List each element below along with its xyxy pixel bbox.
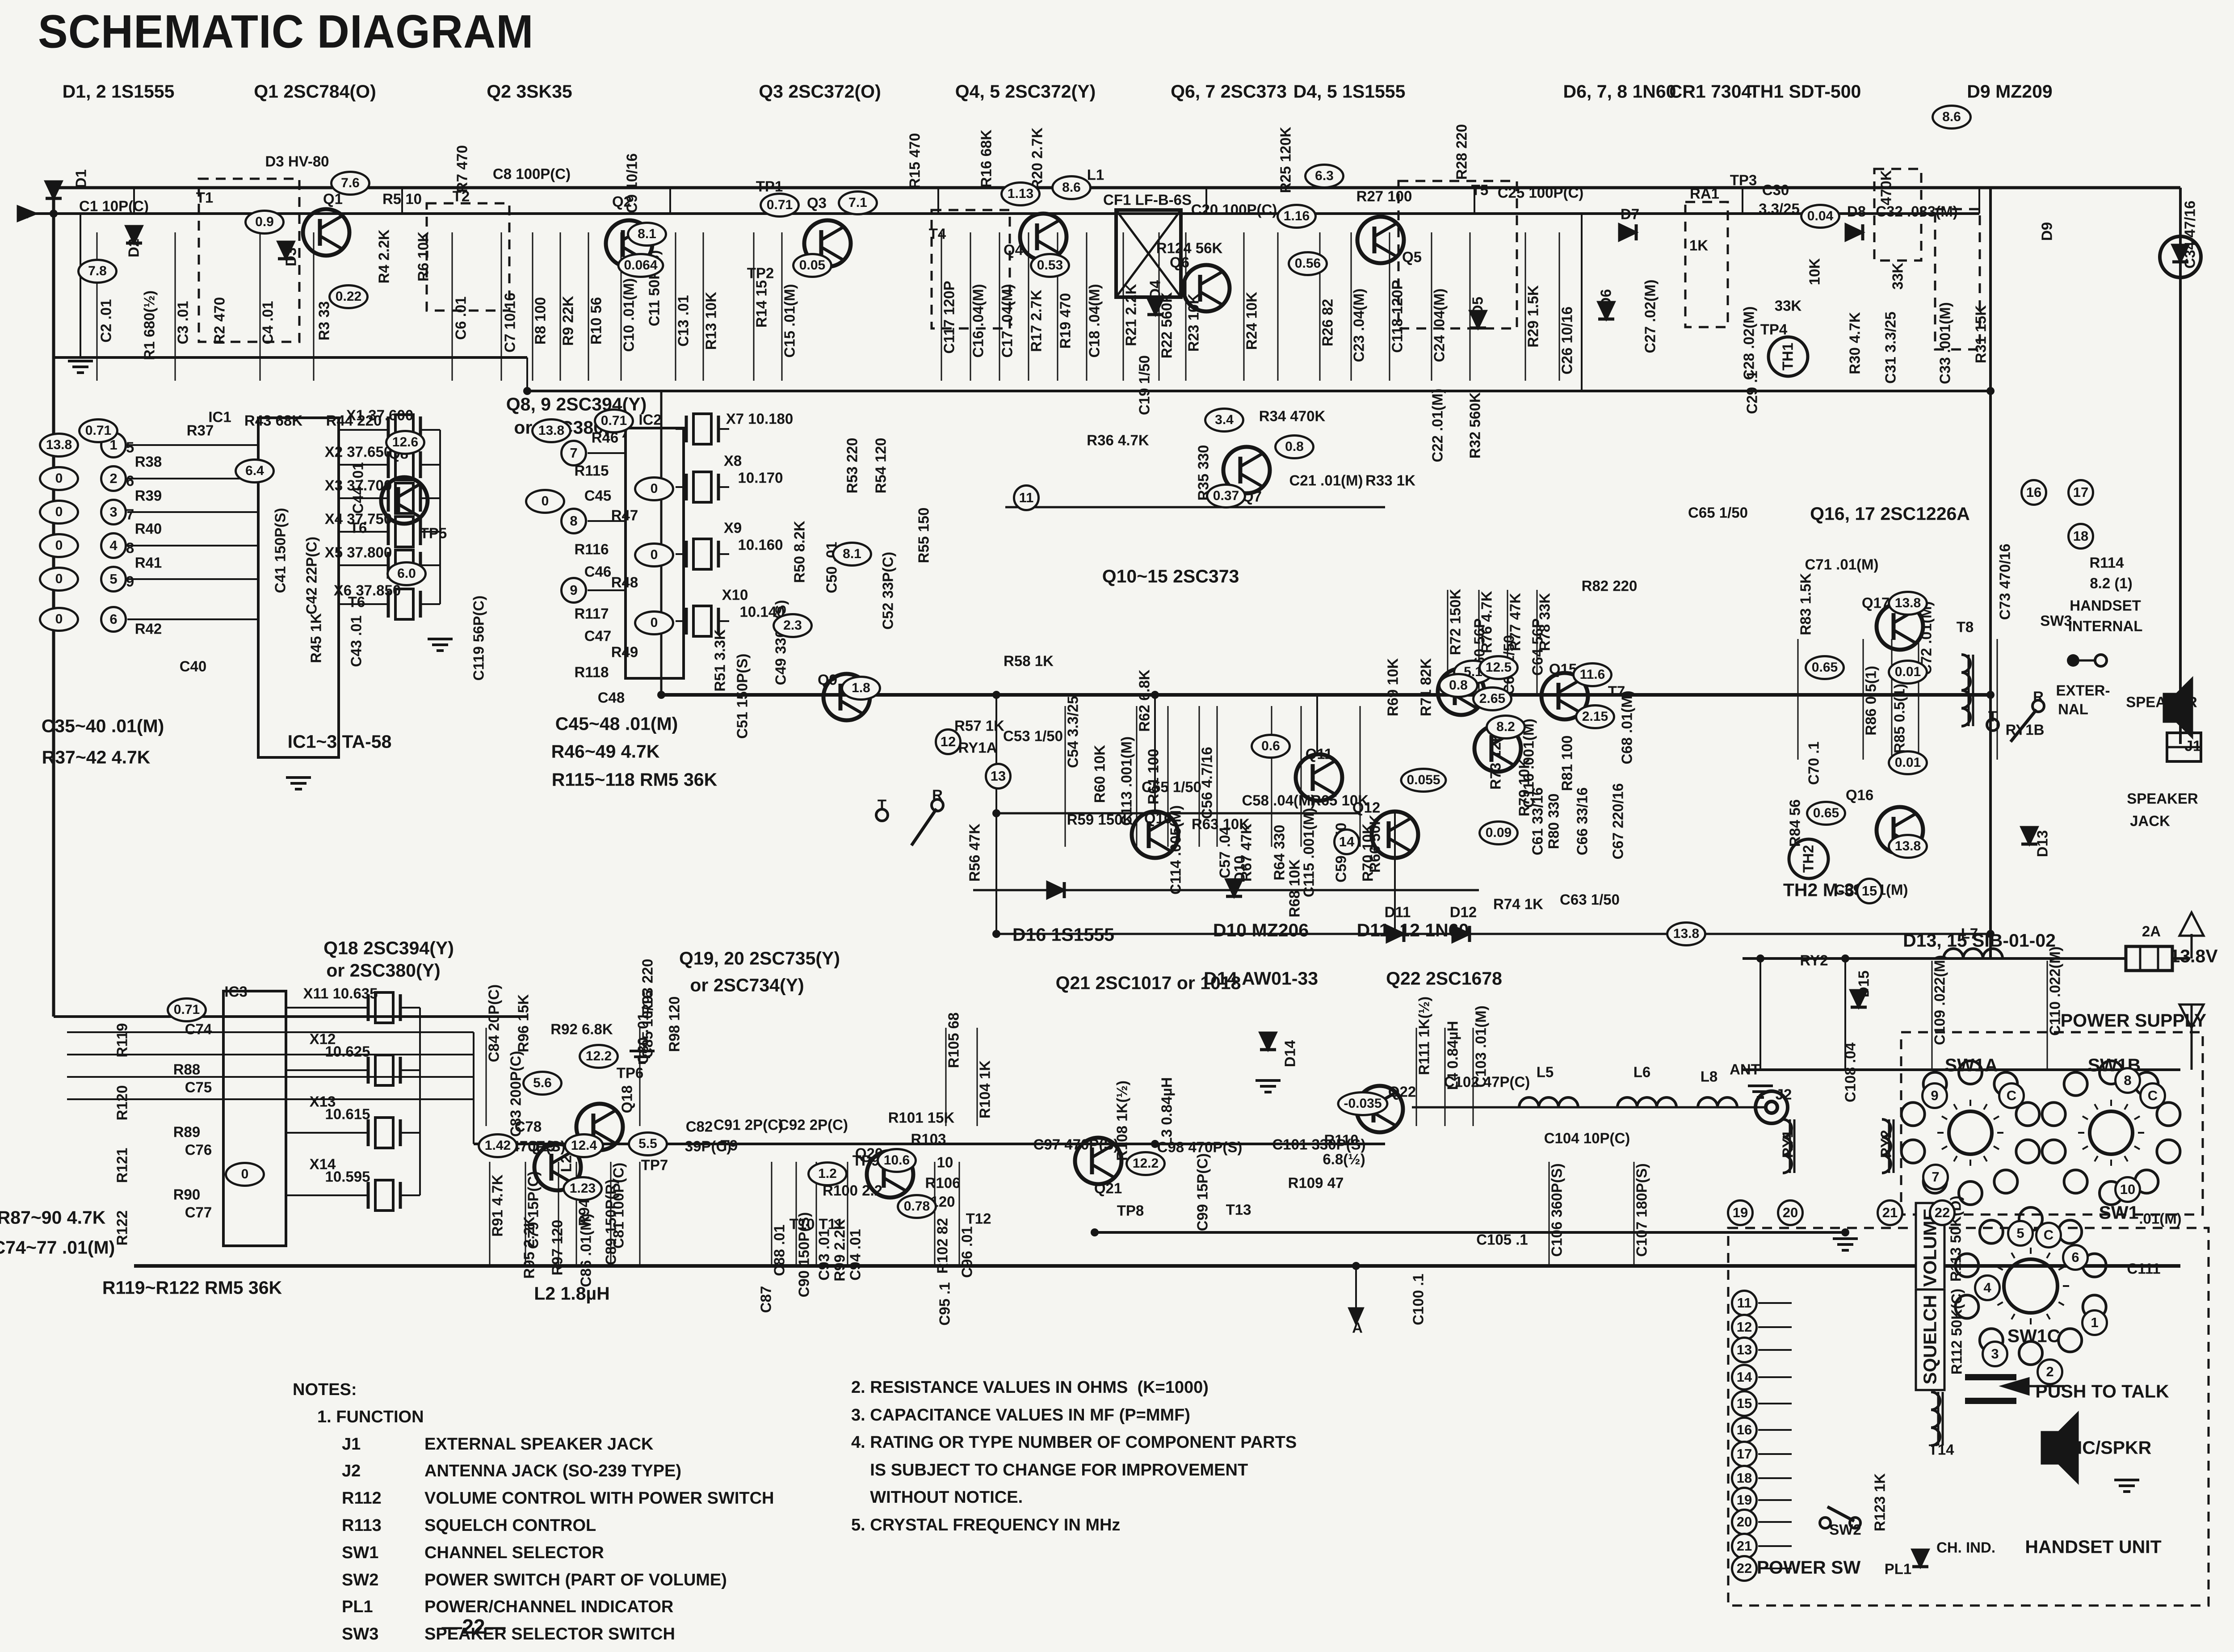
voltage-badge: 1.13 — [1000, 181, 1041, 206]
component-label: R46~49 4.7K — [551, 742, 660, 761]
component-label: PL1 — [1885, 1562, 1912, 1577]
terminal-badge: C — [2139, 1082, 2166, 1109]
voltage-badge: 0.71 — [760, 193, 800, 218]
component-label: MIC/SPKR — [2062, 1438, 2151, 1457]
component-label: Q21 — [1094, 1181, 1122, 1197]
component-label: C20 100P(C) — [1191, 202, 1277, 218]
component-label: C13 .01 — [676, 295, 692, 347]
voltage-badge: 1.16 — [1277, 204, 1317, 229]
component-label: R96 15K — [516, 994, 532, 1052]
voltage-badge: 13.8 — [39, 433, 79, 458]
component-label: C31 3.3/25 — [1883, 311, 1899, 383]
component-label: C110 .022(M) — [2048, 946, 2063, 1036]
component-label: Q4 — [1004, 243, 1023, 258]
component-label: C4 .01 — [260, 301, 276, 344]
component-label: 33K — [1890, 263, 1906, 290]
component-label: 10K — [1807, 258, 1823, 286]
terminal-badge: 4 — [100, 532, 127, 559]
component-label: C61 33/16 — [1530, 787, 1546, 855]
voltage-badge: 0.78 — [897, 1194, 937, 1219]
component-label: R2 470 — [212, 297, 228, 345]
component-label: TP3 — [1730, 173, 1757, 189]
component-label: X8 — [724, 454, 742, 469]
terminal-badge: 16 — [2020, 479, 2047, 506]
component-label: C18 .04(M) — [1087, 284, 1103, 357]
voltage-badge: 0.71 — [78, 418, 118, 443]
function-code: RY1,2 — [342, 1648, 424, 1652]
component-label: RY2 — [1800, 953, 1828, 969]
function-code: SW3 — [342, 1621, 424, 1648]
component-label: X10 — [722, 588, 748, 603]
component-label: C99 15P(C) — [1195, 1153, 1211, 1231]
component-label: TP2 — [747, 266, 774, 282]
voltage-badge: 8.6 — [1932, 105, 1972, 130]
component-label: C85 10/16 — [640, 990, 656, 1058]
component-label: Q12 — [1352, 800, 1380, 816]
terminal-badge: 22 — [1731, 1555, 1758, 1582]
component-label: TH1 — [1780, 343, 1796, 370]
component-label: R55 150 — [916, 508, 932, 563]
component-label: C41 150P(S) — [273, 508, 289, 593]
component-label: POWER SUPPLY — [2061, 1011, 2207, 1030]
terminal-badge: 5 — [100, 566, 127, 593]
component-label: R54 120 — [873, 438, 889, 494]
voltage-badge: 12.5 — [1478, 655, 1519, 680]
component-label: R82 220 — [1582, 579, 1638, 594]
terminal-badge: 15 — [1731, 1390, 1758, 1417]
component-label: R9 22K — [561, 296, 576, 346]
component-label: R103 — [911, 1132, 946, 1148]
component-label: R70 10K — [1361, 824, 1376, 882]
component-label: R84 56 — [1788, 799, 1803, 847]
component-label: SPEAKER — [2126, 695, 2197, 710]
component-label: R — [2033, 689, 2044, 705]
function-desc: POWER SWITCH (PART OF VOLUME) — [424, 1567, 727, 1594]
component-label: HANDSET UNIT — [2025, 1537, 2161, 1556]
component-label: RY1B — [2006, 723, 2045, 738]
component-label: RY2 — [1879, 1130, 1894, 1158]
component-label: Q9 — [818, 673, 837, 688]
terminal-badge: 15 — [1856, 878, 1883, 904]
component-label: L8 — [1701, 1069, 1718, 1085]
component-label: C63 1/50 — [1560, 892, 1620, 908]
component-label: JACK — [2130, 814, 2170, 829]
component-label: R97 120 — [550, 1220, 566, 1276]
component-label: IC2 — [638, 412, 661, 428]
voltage-badge: 1.2 — [807, 1161, 848, 1186]
component-label: R110 — [1324, 1133, 1358, 1148]
component-label: Q2 — [612, 194, 632, 210]
component-label: R50 8.2K — [792, 521, 808, 583]
component-label: C108 .04 — [1843, 1042, 1859, 1102]
component-label: POWER SW — [1757, 1558, 1860, 1577]
terminal-badge: 21 — [1877, 1199, 1903, 1226]
component-label: R121 — [115, 1148, 130, 1183]
component-label: C73 470/16 — [1998, 544, 2013, 620]
component-label: X5 37.800 — [325, 545, 392, 561]
component-label: IC1~3 TA-58 — [288, 732, 392, 751]
component-label: R44 220 — [326, 413, 382, 429]
component-label: 8.2 (1) — [2090, 576, 2132, 592]
component-label: R38 — [135, 454, 162, 470]
component-label: J1 — [2185, 739, 2201, 754]
terminal-badge: 14 — [1333, 828, 1360, 855]
voltage-badge: 0.8 — [1438, 673, 1478, 698]
voltage-badge: 0 — [634, 542, 674, 567]
terminal-badge: 2 — [2037, 1358, 2063, 1385]
component-label: Q10~15 2SC373 — [1102, 567, 1239, 586]
component-label: R26 82 — [1320, 299, 1336, 346]
component-label: C56 4.7/16 — [1200, 747, 1215, 819]
component-label: TH2 — [1801, 845, 1817, 873]
voltage-badge: 12.2 — [579, 1044, 619, 1069]
component-label: C94 .01 — [848, 1229, 864, 1281]
top-component-label: D1, 2 1S1555 — [63, 82, 175, 101]
notes-function-item: R113SQUELCH CONTROL — [342, 1512, 774, 1539]
component-label: D1 — [74, 169, 89, 188]
component-label: TP4 — [1760, 322, 1788, 338]
notes-function-list: J1EXTERNAL SPEAKER JACKJ2ANTENNA JACK (S… — [293, 1431, 774, 1652]
top-component-label: Q1 2SC784(O) — [254, 82, 376, 101]
component-label: R57 1K — [954, 719, 1004, 734]
component-label: R123 1K — [1873, 1473, 1888, 1531]
voltage-badge: 5.5 — [628, 1131, 668, 1156]
component-label: R115 — [574, 463, 609, 479]
terminal-badge: 4 — [1974, 1274, 2001, 1301]
notes-function-item: SW3SPEAKER SELECTOR SWITCH — [342, 1621, 774, 1648]
component-label: ANT — [1730, 1062, 1760, 1078]
component-label: SW2 — [1829, 1522, 1861, 1538]
terminal-badge: 11 — [1013, 484, 1040, 511]
notes-function-item: PL1POWER/CHANNEL INDICATOR — [342, 1593, 774, 1621]
component-label: C19 1/50 — [1137, 355, 1153, 415]
component-label: D3 — [284, 248, 299, 266]
component-label: C67 220/16 — [1611, 783, 1626, 860]
component-label: R13 10K — [704, 292, 719, 350]
terminal-badge: 8 — [2114, 1067, 2141, 1094]
component-label: R117 — [574, 606, 609, 622]
voltage-badge: 8.1 — [627, 222, 667, 247]
terminal-badge: 7 — [560, 440, 587, 467]
component-label: R36 4.7K — [1087, 433, 1149, 449]
component-label: 10.625 — [325, 1044, 370, 1060]
component-label: C82 — [686, 1119, 713, 1135]
component-label: C40 — [180, 659, 207, 675]
terminal-badge: 3 — [100, 499, 127, 525]
component-label: Q18 — [620, 1085, 635, 1113]
component-label: D2 — [126, 239, 142, 257]
component-label: D11, 12 1N60 — [1357, 921, 1469, 940]
component-label: C48 — [598, 690, 625, 706]
component-label: R81 100 — [1560, 736, 1575, 791]
voltage-badge: 0 — [39, 500, 79, 525]
component-label: R31 15K — [1974, 305, 1989, 363]
component-label: T14 — [1929, 1442, 1954, 1458]
component-label: C45 — [584, 488, 612, 504]
voltage-badge: 0.71 — [167, 997, 207, 1022]
voltage-badge: 0.8 — [1274, 434, 1314, 459]
component-label: R43 68K — [244, 413, 302, 429]
component-label: T6 — [348, 595, 365, 610]
page-title: SCHEMATIC DIAGRAM — [38, 5, 534, 59]
component-label: Q22 — [1388, 1085, 1416, 1100]
component-label: R3 33 — [317, 301, 332, 340]
component-label: R40 — [135, 521, 162, 537]
voltage-badge: 0.055 — [1400, 768, 1447, 793]
voltage-badge: 0 — [525, 489, 565, 514]
component-label: R8 100 — [533, 297, 549, 345]
component-label: R25 120K — [1278, 127, 1294, 193]
component-label: C76 — [185, 1143, 212, 1158]
voltage-badge: 6.4 — [235, 458, 275, 483]
component-label: D3 HV-80 — [265, 154, 329, 170]
voltage-badge: 0.65 — [1805, 655, 1845, 680]
component-label: R61 100 — [1146, 749, 1162, 805]
component-label: T5 — [1471, 183, 1489, 198]
top-component-label: Q6, 7 2SC373 — [1171, 82, 1287, 101]
component-label: R74 1K — [1493, 897, 1543, 912]
component-label: C42 22P(C) — [304, 537, 320, 614]
component-label: X7 10.180 — [726, 412, 793, 427]
terminal-badge: 5 — [2007, 1220, 2034, 1247]
component-label: R19 470 — [1058, 293, 1074, 349]
component-label: R37~42 4.7K — [42, 748, 151, 767]
component-label: R98 120 — [667, 996, 683, 1052]
component-label: L2 1.8µH — [534, 1284, 609, 1303]
component-label: or 2SC380(Y) — [326, 961, 440, 980]
component-label: R32 560K — [1468, 392, 1483, 459]
voltage-badge: 2.3 — [773, 613, 813, 638]
component-label: D6 — [1599, 289, 1614, 308]
component-label: 13.8V — [2170, 946, 2217, 966]
component-label: Q6 — [1170, 255, 1189, 271]
component-label: R83 1.5K — [1798, 573, 1814, 635]
component-label: Q17 — [1862, 596, 1890, 611]
voltage-badge: 0 — [39, 567, 79, 592]
terminal-badge: 13 — [1731, 1337, 1758, 1363]
voltage-badge: 10.6 — [877, 1148, 917, 1173]
component-label: D11 — [1385, 905, 1411, 921]
component-label: C43 .01 — [349, 615, 365, 667]
terminal-badge: 12 — [935, 728, 962, 755]
top-component-label: TH1 SDT-500 — [1749, 82, 1861, 101]
terminal-badge: 10 — [2114, 1176, 2141, 1203]
function-code: R112 — [342, 1485, 424, 1512]
component-label: R20 2.7K — [1030, 127, 1046, 189]
component-label: C47 — [584, 629, 612, 644]
component-label: 10.160 — [738, 538, 783, 553]
component-label: C1 10P(C) — [79, 199, 149, 214]
component-label: C100 .1 — [1411, 1274, 1427, 1325]
component-label: C84 20P(C) — [487, 984, 502, 1062]
component-label: C105 .1 — [1476, 1232, 1528, 1248]
terminal-badge: 11 — [1731, 1290, 1758, 1316]
terminal-badge: 17 — [2067, 479, 2094, 506]
component-label: R15 470 — [907, 133, 923, 189]
component-label: 33K — [1775, 298, 1802, 314]
component-label: R53 220 — [845, 438, 861, 494]
voltage-badge: 7.6 — [330, 171, 370, 196]
component-label: T — [1988, 709, 1997, 725]
component-label: R92 6.8K — [550, 1022, 613, 1038]
component-label: SW1A — [1945, 1055, 1998, 1075]
component-label: C66 33/16 — [1575, 787, 1591, 855]
component-label: RY1A — [958, 740, 997, 756]
component-label: D10 — [1232, 856, 1248, 883]
component-label: R60 10K — [1092, 745, 1108, 803]
component-label: R30 4.7K — [1848, 312, 1863, 374]
component-label: R28 220 — [1454, 124, 1470, 180]
component-label: C58 .04(M) — [1242, 793, 1315, 809]
top-component-label: D6, 7, 8 1N60 — [1563, 82, 1676, 101]
component-label: C33 .001(M) — [1938, 302, 1953, 384]
voltage-badge: 12.2 — [1125, 1151, 1166, 1176]
component-label: C2 .01 — [99, 299, 114, 342]
component-label: C119 56P(C) — [471, 596, 487, 681]
component-label: R7 470 — [455, 145, 470, 193]
component-label: C7 10/16 — [503, 293, 518, 353]
terminal-badge: 16 — [1731, 1417, 1758, 1443]
component-label: C93 .01 — [817, 1229, 832, 1281]
component-label: 3.3/25 — [1759, 202, 1800, 217]
component-label: R102 82 — [935, 1218, 951, 1274]
top-component-label: Q2 3SK35 — [487, 82, 572, 101]
component-label: TP7 — [641, 1158, 668, 1173]
component-label: X6 37.850 — [334, 583, 401, 599]
component-label: C106 360P(S) — [1550, 1163, 1565, 1257]
component-label: R29 1.5K — [1526, 285, 1541, 347]
component-label: T6 — [350, 521, 367, 536]
component-label: 10.595 — [325, 1169, 370, 1185]
component-label: 10.170 — [738, 471, 783, 486]
component-label: C34 47/16 — [2183, 201, 2198, 269]
component-label: SW1 — [2099, 1203, 2139, 1222]
voltage-badge: 1.42 — [478, 1133, 518, 1158]
terminal-badge: 22 — [1929, 1199, 1956, 1226]
component-label: C49 330P(S) — [773, 600, 789, 685]
notes-function-item: SW2POWER SWITCH (PART OF VOLUME) — [342, 1567, 774, 1594]
component-label: C95 .1 — [937, 1282, 953, 1325]
function-code: PL1 — [342, 1593, 424, 1621]
voltage-badge: 0.01 — [1888, 750, 1928, 775]
component-label: C90 150P(S) — [797, 1212, 812, 1298]
component-label: D15 — [1856, 971, 1872, 998]
component-label: C107 180P(S) — [1634, 1163, 1650, 1257]
component-label: C109 .022(M) — [1932, 955, 1948, 1045]
function-desc: VOLUME CONTROL WITH POWER SWITCH — [424, 1485, 774, 1512]
component-label: R90 — [173, 1187, 201, 1203]
component-label: R69 10K — [1386, 658, 1401, 716]
function-code: SW1 — [342, 1539, 424, 1567]
voltage-badge: 0 — [39, 466, 79, 491]
voltage-badge: 0.71 — [594, 408, 634, 433]
voltage-badge: 7.1 — [838, 190, 878, 215]
component-label: IC3 — [224, 984, 247, 1000]
component-label: 10.615 — [325, 1107, 370, 1122]
component-label: C111 — [2127, 1261, 2160, 1277]
notes-block: NOTES: 1. FUNCTION J1EXTERNAL SPEAKER JA… — [293, 1376, 774, 1652]
component-label: C8 100P(C) — [493, 167, 571, 182]
component-label: C10 .01(M) — [621, 278, 637, 352]
component-label: 470K — [1879, 170, 1894, 206]
terminal-badge: 19 — [1727, 1199, 1754, 1226]
schematic-sheet: SCHEMATIC DIAGRAM D1, 2 1S1555Q1 2SC784(… — [0, 0, 2234, 1652]
voltage-badge: 7.8 — [77, 259, 118, 284]
voltage-badge: 12.6 — [385, 430, 425, 455]
component-label: D16 1S1555 — [1012, 925, 1114, 944]
component-label: R99 2.2K — [832, 1219, 848, 1281]
component-label: RA1 — [1690, 186, 1719, 202]
voltage-badge: 5.6 — [522, 1071, 563, 1096]
terminal-badge: 8 — [560, 508, 587, 534]
component-label: D13, 15 SIB-01-02 — [1903, 931, 2056, 950]
component-label: C30 — [1762, 183, 1789, 198]
component-label: C74~77 .01(M) — [0, 1238, 115, 1257]
component-label: R105 68 — [946, 1013, 962, 1068]
component-label: 1K — [1689, 238, 1708, 254]
component-label: C51 150P(S) — [735, 654, 751, 739]
component-label: R47 — [611, 508, 638, 524]
component-label: CF1 LF-B-6S — [1103, 193, 1192, 208]
component-label: D14 — [1283, 1040, 1298, 1068]
component-label: .01(M) — [2139, 1211, 2181, 1227]
component-label: C71 .01(M) — [1805, 557, 1878, 573]
component-label: D14 AW01-33 — [1204, 969, 1318, 988]
component-label: R5 10 — [382, 192, 422, 207]
voltage-badge: 0.9 — [244, 210, 285, 235]
component-label: CH. IND. — [1936, 1540, 1995, 1556]
component-label: TP6 — [617, 1066, 644, 1081]
component-label: R95 2.2K — [522, 1216, 538, 1278]
voltage-badge: 0.56 — [1288, 251, 1328, 276]
terminal-badge: 1 — [2081, 1309, 2108, 1336]
component-label: R24 10K — [1244, 292, 1260, 350]
component-label: R85 0.5(1) — [1892, 684, 1908, 753]
function-desc: ANTENNA JACK (SO-239 TYPE) — [424, 1458, 681, 1485]
terminal-badge: 9 — [560, 577, 587, 604]
component-label: D9 — [2040, 222, 2055, 241]
component-label: R51 3.3K — [713, 629, 728, 691]
voltage-badge: 0 — [39, 533, 79, 558]
component-label: C89 150P(R) — [604, 1179, 619, 1265]
voltage-badge: 1.8 — [841, 676, 881, 701]
terminal-badge: 13 — [985, 763, 1012, 790]
component-label: D7 — [1621, 207, 1639, 223]
component-label: HANDSET — [2070, 598, 2141, 614]
terminal-badge: 6 — [100, 606, 127, 633]
component-label: C118 120P — [1390, 280, 1406, 353]
component-label: R10 56 — [589, 297, 605, 345]
component-label: R71 82K — [1419, 658, 1434, 716]
voltage-badge: 8.1 — [832, 542, 872, 567]
component-label: D12 — [1450, 905, 1477, 921]
terminal-badge: 9 — [1921, 1082, 1948, 1109]
component-label: R119~R122 RM5 36K — [102, 1278, 282, 1297]
component-label: Q19, 20 2SC735(Y) — [679, 949, 840, 968]
component-label: T — [878, 798, 886, 813]
terminal-badge: 3 — [1982, 1341, 2008, 1367]
component-label: T8 — [1957, 620, 1974, 635]
component-label: A — [1352, 1320, 1363, 1336]
component-label: R108 1K(½) — [1115, 1080, 1130, 1161]
terminal-badge: 17 — [1731, 1441, 1758, 1467]
function-desc: EXTERNAL SPEAKER JACK — [424, 1431, 653, 1458]
component-label: C28 .02(M) — [1742, 306, 1757, 380]
component-label: R58 1K — [1004, 654, 1054, 669]
component-label: SW3 — [2040, 614, 2072, 629]
component-label: R17 2.7K — [1029, 290, 1045, 352]
component-label: C104 10P(C) — [1544, 1131, 1630, 1147]
